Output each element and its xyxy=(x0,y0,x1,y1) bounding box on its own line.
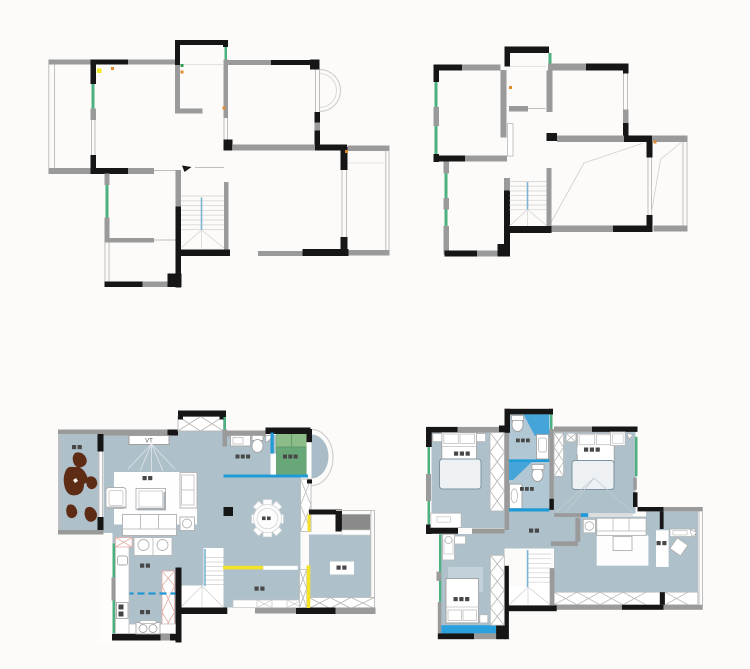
svg-text:VT: VT xyxy=(145,439,153,445)
